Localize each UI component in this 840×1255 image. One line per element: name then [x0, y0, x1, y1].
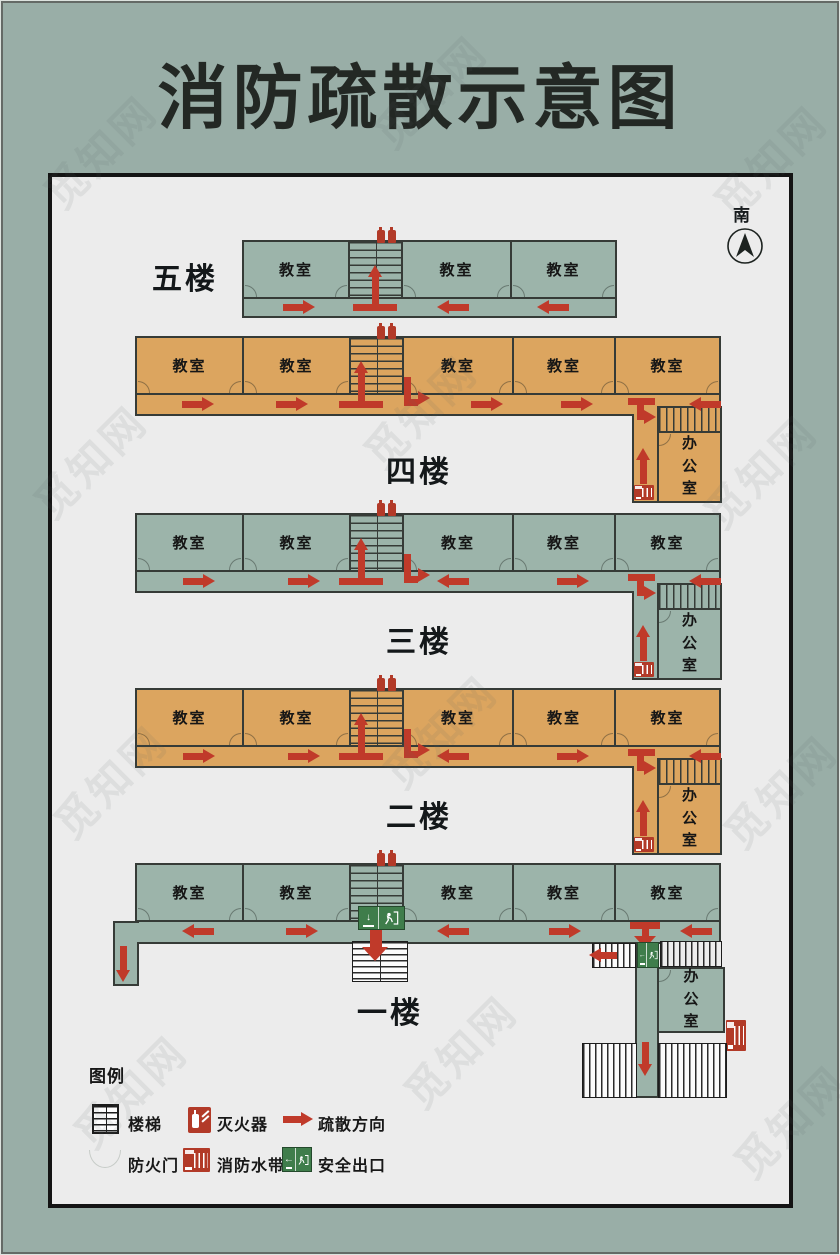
- evacuation-poster: 消防疏散示意图 南 五楼 教室 教室 教室 四楼 教室 教室 教室 教室 教室: [0, 0, 840, 1255]
- evacuation-arrow-up: [339, 538, 383, 585]
- running-man-icon: [647, 943, 658, 967]
- classroom: 教室: [137, 338, 242, 393]
- evacuation-arrow-up: [640, 812, 647, 836]
- fire-hose-icon: [726, 1020, 746, 1051]
- floor-4-office: 办公室: [657, 431, 722, 503]
- safety-exit-sign: ↓: [358, 906, 405, 930]
- room-label: 教室: [650, 882, 684, 903]
- evacuation-arrow-right: [471, 401, 491, 408]
- exit-arrow-glyph: ↓: [366, 913, 371, 923]
- room-label: 教室: [546, 259, 580, 280]
- room-label: 教室: [441, 707, 475, 728]
- office-label: 办公室: [681, 610, 698, 678]
- room-label: 教室: [172, 882, 206, 903]
- room-label: 教室: [547, 532, 581, 553]
- evacuation-arrow-up: [640, 460, 647, 484]
- legend-direction-label: 疏散方向: [318, 1111, 386, 1135]
- floor-1-west-corridor: [113, 921, 139, 944]
- evacuation-arrow-right: [286, 928, 306, 935]
- floor-3-label: 三楼: [386, 617, 452, 661]
- floor-1-label: 一楼: [357, 988, 423, 1032]
- evacuation-arrow-down-right: [404, 729, 430, 765]
- evacuation-arrow-left: [601, 952, 617, 959]
- room-label: 教室: [547, 707, 581, 728]
- room-label: 教室: [172, 355, 206, 376]
- evacuation-arrow-down: [642, 1042, 649, 1064]
- classroom: 教室: [242, 865, 349, 920]
- room-label: 教室: [279, 532, 313, 553]
- legend-fire-door-label: 防火门: [128, 1152, 179, 1176]
- exit-legend-icon: ←: [282, 1147, 312, 1172]
- floor-1-office: 办公室: [657, 967, 725, 1033]
- evacuation-arrow-right: [549, 928, 569, 935]
- evacuation-arrow-into-stairs: [628, 398, 660, 428]
- evacuation-arrow-right: [183, 753, 203, 760]
- classroom: 教室: [242, 690, 349, 745]
- compass-icon: [725, 226, 765, 271]
- evacuation-arrow-right: [557, 578, 577, 585]
- classroom: 教室: [242, 515, 349, 570]
- compass-south-label: 南: [733, 201, 750, 226]
- classroom: 教室: [137, 515, 242, 570]
- fire-hose-legend-icon: [183, 1148, 210, 1172]
- floor-1-rooms: 教室 教室 教室 教室 教室: [137, 865, 719, 922]
- room-label: 教室: [279, 355, 313, 376]
- classroom: 教室: [512, 515, 614, 570]
- room-label: 教室: [172, 707, 206, 728]
- room-label: 教室: [279, 259, 313, 280]
- room-label: 教室: [441, 355, 475, 376]
- legend-exit-label: 安全出口: [318, 1152, 386, 1176]
- classroom: 教室: [244, 242, 348, 297]
- floor-3-office: 办公室: [657, 608, 722, 680]
- room-label: 教室: [172, 532, 206, 553]
- fire-hose-icon: [634, 662, 654, 677]
- room-label: 教室: [650, 532, 684, 553]
- office-label: 办公室: [681, 785, 698, 853]
- evacuation-arrow-left: [449, 578, 469, 585]
- evacuation-arrow-right: [276, 401, 296, 408]
- evacuation-arrow-up: [353, 265, 397, 311]
- fire-hose-icon: [634, 837, 654, 852]
- legend-title: 图例: [89, 1062, 125, 1087]
- evacuation-arrow-up: [339, 713, 383, 760]
- outdoor-stairs: [582, 1043, 637, 1098]
- legend-stairs-label: 楼梯: [128, 1111, 162, 1135]
- evacuation-arrow-into-stairs: [628, 574, 660, 604]
- evacuation-arrow-up: [640, 637, 647, 661]
- room-label: 教室: [279, 882, 313, 903]
- evacuation-arrow-into-stairs: [628, 749, 660, 779]
- classroom: 教室: [512, 865, 614, 920]
- floor-1-east-stairs: [660, 941, 722, 967]
- evacuation-arrow-down-right: [404, 377, 430, 413]
- floor-2-office: 办公室: [657, 783, 722, 855]
- room-label: 教室: [439, 259, 473, 280]
- classroom: 教室: [404, 865, 512, 920]
- office-label: 办公室: [683, 966, 700, 1034]
- evacuation-arrow-left: [701, 401, 721, 408]
- classroom: 教室: [614, 338, 719, 393]
- room-label: 教室: [279, 707, 313, 728]
- office-label: 办公室: [681, 433, 698, 501]
- classroom: 教室: [137, 690, 242, 745]
- evacuation-arrow-left: [449, 753, 469, 760]
- classroom: 教室: [403, 242, 510, 297]
- legend-extinguisher-label: 灭火器: [217, 1111, 268, 1135]
- running-man-icon: [296, 1148, 311, 1171]
- room-label: 教室: [650, 707, 684, 728]
- room-label: 教室: [650, 355, 684, 376]
- fire-extinguisher-icon: [377, 853, 396, 866]
- legend-fire-hose-label: 消防水带: [217, 1152, 285, 1176]
- floor-2-label: 二楼: [386, 792, 452, 836]
- classroom: 教室: [512, 690, 614, 745]
- evacuation-arrow-left: [549, 304, 569, 311]
- fire-extinguisher-icon: [377, 326, 396, 339]
- room-label: 教室: [441, 532, 475, 553]
- evacuation-arrow-left: [194, 928, 214, 935]
- stairs-legend-icon: [92, 1104, 119, 1134]
- room-label: 教室: [547, 355, 581, 376]
- evacuation-arrow-right: [288, 578, 308, 585]
- exit-arrow-glyph: ←: [639, 952, 646, 959]
- fire-hose-icon: [634, 485, 654, 500]
- room-label: 教室: [547, 882, 581, 903]
- page-title: 消防疏散示意图: [0, 42, 840, 143]
- floor-5-rooms: 教室 教室 教室: [244, 242, 615, 299]
- fire-extinguisher-legend-icon: [188, 1107, 211, 1133]
- classroom: 教室: [242, 338, 349, 393]
- exit-arrow-glyph: ←: [284, 1155, 294, 1165]
- evacuation-arrow-left: [701, 578, 721, 585]
- evacuation-arrow-down-right: [404, 554, 430, 590]
- classroom: 教室: [512, 338, 614, 393]
- evacuation-arrow-down: [362, 930, 389, 961]
- fire-extinguisher-icon: [377, 503, 396, 516]
- room-label: 教室: [441, 882, 475, 903]
- running-man-icon: [379, 907, 404, 929]
- evacuation-arrow-right: [557, 753, 577, 760]
- classroom: 教室: [614, 515, 719, 570]
- fire-extinguisher-icon: [377, 230, 396, 243]
- evacuation-arrow-right: [561, 401, 581, 408]
- classroom: 教室: [137, 865, 242, 920]
- floor-4-label: 四楼: [386, 447, 452, 491]
- evacuation-arrow-right: [182, 401, 202, 408]
- evacuation-arrow-right: [183, 578, 203, 585]
- evacuation-arrow-right: [283, 304, 303, 311]
- direction-legend-icon: [283, 1116, 301, 1123]
- evacuation-arrow-up: [339, 361, 383, 408]
- classroom: 教室: [614, 690, 719, 745]
- evacuation-arrow-down: [120, 946, 127, 970]
- evacuation-arrow-left: [701, 753, 721, 760]
- evacuation-arrow-left: [449, 304, 469, 311]
- evacuation-arrow-left: [692, 928, 712, 935]
- fire-extinguisher-icon: [377, 678, 396, 691]
- evacuation-arrow-left: [449, 928, 469, 935]
- safety-exit-sign: ←: [637, 942, 659, 968]
- outdoor-stairs: [658, 1043, 727, 1098]
- fire-door-legend-icon: [89, 1150, 121, 1168]
- floor-5-label: 五楼: [152, 254, 218, 298]
- classroom: 教室: [510, 242, 615, 297]
- classroom: 教室: [614, 865, 719, 920]
- evacuation-arrow-right: [288, 753, 308, 760]
